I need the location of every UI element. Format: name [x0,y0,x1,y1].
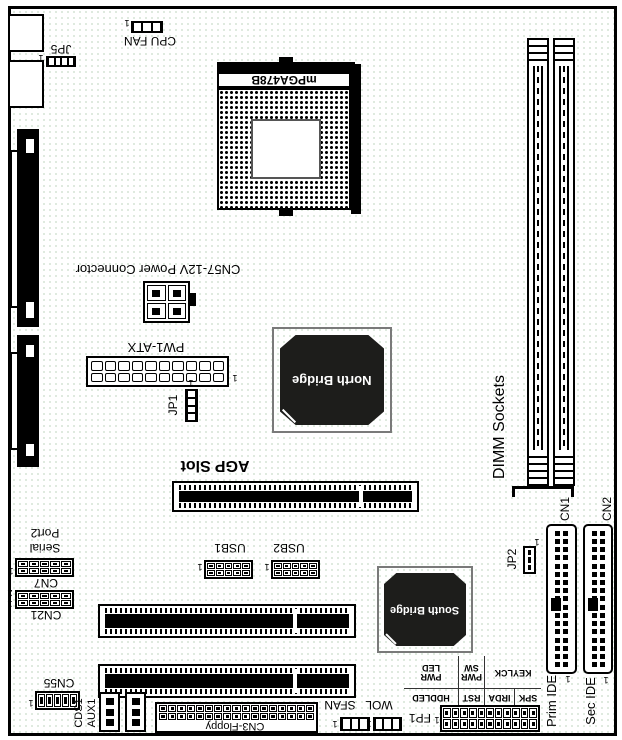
wol-connector [373,717,402,731]
jp1-label: JP1 [166,390,180,420]
cpu-socket-tab-top [279,57,293,63]
north-bridge-chip: North Bridge [280,335,384,425]
fp-pwr-sw-label: PWR SW [459,656,485,689]
cn7-header [15,558,74,577]
usb1-label: USB1 [206,540,254,556]
fp-rst-label: RST [459,689,485,705]
atx-pin1-marker: 1 [231,373,239,383]
cn7-label: CN7 [27,577,65,590]
parallel-port [17,129,39,327]
aux1-connector [125,692,146,732]
fp-pwr-led-label: PWR LED [404,656,459,689]
usb2-pin1-marker: 1 [263,562,271,572]
parallel-port-bracket-top [24,137,36,155]
fp-spk-label: SPK [515,689,541,705]
motherboard-diagram: JP5 1 1 CPU FAN mPGA478B CN57-12V Power … [0,0,622,740]
wol-label: WOL [361,699,397,712]
jp1-jumper [185,389,198,422]
usb2-label: USB2 [265,540,313,556]
cpu-fan-pin1-marker: 1 [123,18,131,28]
cn7-pin1-marker: 1 [7,566,15,576]
serial-port2-label: Serial Port2 [18,524,72,557]
cds1-label: CDS1 [72,694,85,732]
dimm-foot-bar [512,486,574,489]
cn2-label: CN2 [599,492,615,526]
jp1-pin1-marker: 1 [187,378,195,388]
jp5-pin1-marker: 1 [37,53,45,63]
front-panel-label-table: SPK IRDA RST HDDLED KEYLCK PWR SW PWR LE… [404,656,541,705]
ps2-port-top [8,14,44,52]
power-12v-latch [190,293,196,306]
jp2-pin1-marker: 1 [533,537,541,547]
ide-connector-secondary [583,524,613,674]
cn21-label: CN21 [23,608,69,622]
parallel-port-bracket-bottom [24,300,36,320]
fp-hddled-label: HDDLED [404,689,459,705]
cpu-socket-center [251,119,321,179]
fp-irda-label: IRDA [485,689,515,705]
cpu-fan-connector [131,21,163,33]
cds1-connector [99,692,120,732]
usb1-header [204,560,253,579]
jp2-jumper [523,546,536,574]
south-bridge-label: South Bridge [390,604,459,616]
usb1-pin1-marker: 1 [196,562,204,572]
dimm-socket-2 [553,38,575,486]
cn21-pin2-marker: 2 [6,588,14,598]
agp-slot [172,481,419,512]
prim-ide-pin1-marker: 1 [564,674,572,684]
south-bridge-chip: South Bridge [384,573,466,646]
sec-ide-pin1-marker: 1 [602,675,610,685]
dimm-socket-1 [527,38,549,486]
atx-power-label: PW1-ATX [116,341,196,355]
jp5-label: JP5 [44,43,78,56]
power-12v-connector [143,281,190,323]
floppy-label: CN3-Floppy [170,720,300,732]
cn55-label: CN55 [37,676,81,690]
sfan-pin1-marker: 1 [331,719,339,729]
usb2-header [271,560,320,579]
ide-connector-primary [546,524,577,674]
aux1-label: AUX1 [85,694,98,732]
fp1-label: FP1 [405,711,435,726]
serial-port-bracket-bottom [24,442,36,458]
dimm-sockets-label: DIMM Sockets [486,368,514,486]
north-bridge-label: North Bridge [292,373,371,388]
pci-slot-1 [98,604,356,638]
floppy-pins [159,705,314,720]
sec-ide-label: Sec IDE [580,674,600,728]
serial-port-bracket-top [24,343,36,359]
cpu-socket-label: mPGA478B [217,72,351,88]
dimm-foot-tick-left [512,486,515,497]
sfan-label: SFAN [318,699,362,712]
cn21-pin1-marker: 1 [6,599,14,609]
fp-keylck-label: KEYLCK [485,656,541,689]
cn1-label: CN1 [556,492,574,526]
wol-pin1-marker: 1 [365,719,373,729]
prim-ide-label: Prim IDE [541,672,561,730]
cn21-header [15,590,74,609]
jp5-jumper [46,56,76,67]
cpu-socket-lever [351,64,361,214]
ps2-port-bottom [8,60,44,108]
power-12v-label: CN57-12V Power Connector [58,262,258,278]
cpu-socket-top-bar [217,62,355,72]
cn55-pin1-marker: 1 [27,698,35,708]
agp-slot-label: AGP Slot [174,455,256,475]
front-panel-header [440,705,540,732]
atx-power-connector [86,356,229,387]
cpu-socket-tab-bottom [279,210,293,216]
jp2-label: JP2 [504,544,520,574]
cpu-fan-label: CPU FAN [118,34,182,48]
